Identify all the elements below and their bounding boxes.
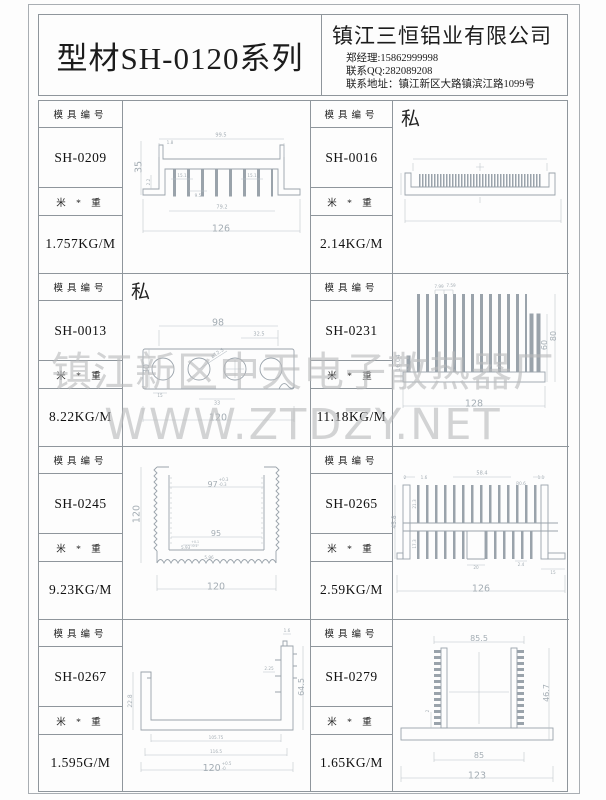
dim-label: 79.2 [216, 206, 227, 211]
dim-label: 45.8 [392, 515, 398, 528]
profile-drawing-sh-0209: 99.5 1.8 35 2.2 15.1 15.1 9.5 79.2 126 [123, 101, 311, 273]
profile-drawing-sh-0013: 私 98 32.5 30 ø12.5 15 33 120 [123, 274, 311, 446]
dim-label: 32.5 [253, 333, 264, 338]
heatsink-cross-section [123, 101, 311, 273]
weight-value: 1.595G/M [39, 735, 122, 790]
dim-label: 1.6 [421, 476, 428, 480]
dim-label: 126 [472, 584, 490, 594]
model-number: SH-0267 [39, 647, 122, 707]
weight-value: 1.65KG/M [311, 735, 392, 790]
dim-label: 123 [468, 771, 486, 781]
label-column: 模具编号 SH-0209 米 * 重 1.757KG/M [39, 101, 123, 273]
cell-sh-0016: 模具编号 SH-0016 米 * 重 2.14KG/M 私 [311, 101, 569, 274]
label-column: 模具编号 SH-0245 米 * 重 9.23KG/M [39, 447, 123, 619]
cell-sh-0231: 模具编号 SH-0231 米 * 重 11.18KG/M 7.99 7.59 1… [311, 274, 569, 447]
model-number: SH-0245 [39, 474, 122, 534]
mold-no-label: 模具编号 [39, 447, 122, 474]
dim-label: 2 [426, 710, 430, 713]
dim-label: 85 [474, 752, 484, 760]
dim-label: 46.7 [543, 684, 551, 702]
dim-label: 80 [550, 331, 558, 341]
model-number: SH-0209 [39, 128, 122, 188]
contact-manager: 郑经理:15862999998 [346, 52, 561, 65]
model-number: SH-0231 [311, 301, 392, 361]
label-column: 模具编号 SH-0267 米 * 重 1.595G/M [39, 620, 123, 792]
dim-label: R0.6 [516, 482, 526, 486]
dim-label: 1.6 [284, 629, 291, 633]
twin-wall-cross-section [393, 620, 568, 792]
dim-label-with-tolerance: 5.93+0.1-0.1 [181, 536, 199, 552]
dim-label: 126 [212, 224, 230, 234]
meter-weight-label: 米 * 重 [311, 707, 392, 735]
dim-label: 15 [550, 571, 555, 575]
meter-weight-label: 米 * 重 [39, 188, 122, 216]
series-title-box: 型材SH-0120系列 [39, 15, 322, 95]
contact-address: 联系地址：镇江新区大路镇滨江路1099号 [346, 78, 561, 91]
company-box: 镇江三恒铝业有限公司 郑经理:15862999998 联系QQ:28208920… [322, 15, 567, 95]
dim-label-with-tolerance: 97+0.3-0.3 [208, 474, 229, 490]
profile-drawing-sh-0231: 7.99 7.59 16.04 60 80 128 [393, 274, 569, 446]
dim-main: 120 [203, 763, 221, 774]
dim-label: 98 [212, 318, 224, 328]
profile-drawing-sh-0267: 22.8 64.5 1.6 2.25 105.75 116.5 120+0.5-… [123, 620, 311, 792]
weight-value: 2.14KG/M [311, 216, 392, 272]
dim-label: 64.5 [298, 678, 306, 696]
cell-sh-0265: 模具编号 SH-0265 米 * 重 2.59KG/M [311, 447, 569, 620]
dim-label: 2.4 [518, 563, 525, 567]
dim-label-with-tolerance: 120+0.5-0 [203, 758, 232, 774]
dim-label: 95 [211, 530, 221, 538]
weight-value: 1.757KG/M [39, 216, 122, 272]
heatsink-cross-section [393, 101, 568, 274]
cell-sh-0267: 模具编号 SH-0267 米 * 重 1.595G/M 22.8 64.5 1.… [39, 620, 311, 792]
dim-label: 85.5 [470, 635, 488, 643]
dim-label: 2.25 [264, 667, 273, 671]
dim-label: 7.99 [434, 285, 443, 289]
label-column: 模具编号 SH-0013 米 * 重 8.22KG/M [39, 274, 123, 446]
profile-drawing-sh-0245: 97+0.3-0.3 120 95 5.93+0.1-0.1 5.96 120 [123, 447, 311, 619]
header: 型材SH-0120系列 镇江三恒铝业有限公司 郑经理:15862999998 联… [38, 14, 568, 96]
contact-qq: 联系QQ:282089208 [346, 65, 561, 78]
model-number: SH-0016 [311, 128, 392, 188]
company-name: 镇江三恒铝业有限公司 [332, 20, 561, 50]
meter-weight-label: 米 * 重 [311, 361, 392, 389]
mold-no-label: 模具编号 [39, 620, 122, 647]
dim-main: 5.93 [181, 545, 190, 550]
meter-weight-label: 米 * 重 [311, 188, 392, 216]
mold-no-label: 模具编号 [39, 274, 122, 301]
profile-drawing-sh-0279: 85.5 46.7 2 85 123 [393, 620, 569, 792]
mold-no-label: 模具编号 [39, 101, 122, 128]
weight-value: 8.22KG/M [39, 389, 122, 445]
dim-label: 17.3 [413, 539, 417, 548]
comb-heatsink-cross-section [393, 274, 568, 447]
mold-no-label: 模具编号 [311, 101, 392, 128]
dim-label: 15 [157, 394, 162, 398]
meter-weight-label: 米 * 重 [311, 534, 392, 562]
profile-drawing-sh-0265: 2 1.6 58.4 R0.6 1.1 45.8 21.3 17.3 20 2.… [393, 447, 569, 619]
dim-label: 1.1 [538, 476, 545, 480]
cell-sh-0209: 模具编号 SH-0209 米 * 重 1.757KG/M 99.5 1.8 35… [39, 101, 311, 274]
cell-sh-0245: 模具编号 SH-0245 米 * 重 9.23KG/M 97+0.3-0.3 1… [39, 447, 311, 620]
dim-label: 22.8 [128, 694, 134, 707]
mold-no-label: 模具编号 [311, 620, 392, 647]
dim-label: 128 [465, 399, 483, 409]
model-number: SH-0279 [311, 647, 392, 707]
dim-label: 2.2 [147, 179, 151, 186]
dim-label: 120 [209, 413, 227, 423]
dim-label: 120 [207, 582, 225, 592]
dim-label: 1.8 [167, 141, 174, 145]
meter-weight-label: 米 * 重 [39, 707, 122, 735]
page-title: 型材SH-0120系列 [57, 33, 304, 78]
mold-no-label: 模具编号 [311, 447, 392, 474]
dim-label: 2 [404, 476, 407, 480]
dim-label: 15.1 [177, 174, 186, 178]
weight-value: 11.18KG/M [311, 389, 392, 445]
tol-lower: -0.1 [191, 545, 199, 548]
dim-label: 15.1 [247, 174, 256, 178]
weight-value: 2.59KG/M [311, 562, 392, 618]
meter-weight-label: 米 * 重 [39, 361, 122, 389]
mold-no-label: 模具编号 [311, 274, 392, 301]
dim-label: 120 [132, 505, 142, 523]
dim-label: 99.5 [215, 134, 226, 139]
dim-label: 30 [143, 364, 151, 374]
label-column: 模具编号 SH-0265 米 * 重 2.59KG/M [311, 447, 393, 619]
dim-label: 5.96 [204, 556, 213, 560]
dim-label: 58.4 [476, 472, 487, 477]
dim-label: 35 [134, 161, 144, 173]
dim-label: 16.04 [396, 354, 402, 371]
dim-label: 105.75 [209, 736, 224, 740]
dim-main: 97 [208, 480, 218, 489]
dim-label: 20 [473, 566, 478, 570]
model-number: SH-0265 [311, 474, 392, 534]
cell-sh-0279: 模具编号 SH-0279 米 * 重 1.65KG/M 85.5 46.7 2 … [311, 620, 569, 792]
dim-label: 21.3 [413, 499, 417, 508]
label-column: 模具编号 SH-0231 米 * 重 11.18KG/M [311, 274, 393, 446]
dim-label: 33 [214, 402, 220, 407]
profile-grid: 模具编号 SH-0209 米 * 重 1.757KG/M 99.5 1.8 35… [38, 100, 568, 792]
weight-value: 9.23KG/M [39, 562, 122, 618]
dim-label: 60 [541, 340, 549, 350]
tol-lower: -0.3 [219, 483, 229, 487]
model-number: SH-0013 [39, 301, 122, 361]
tol-lower: -0 [222, 767, 232, 771]
catalog-page: 型材SH-0120系列 镇江三恒铝业有限公司 郑经理:15862999998 联… [0, 0, 606, 800]
meter-weight-label: 米 * 重 [39, 534, 122, 562]
profile-drawing-sh-0016: 私 [393, 101, 569, 273]
dim-label: 9.5 [195, 194, 202, 198]
cell-sh-0013: 模具编号 SH-0013 米 * 重 8.22KG/M 私 98 [39, 274, 311, 447]
label-column: 模具编号 SH-0016 米 * 重 2.14KG/M [311, 101, 393, 273]
dim-label: 7.59 [446, 284, 455, 288]
dim-label: 116.5 [210, 750, 222, 754]
label-column: 模具编号 SH-0279 米 * 重 1.65KG/M [311, 620, 393, 792]
